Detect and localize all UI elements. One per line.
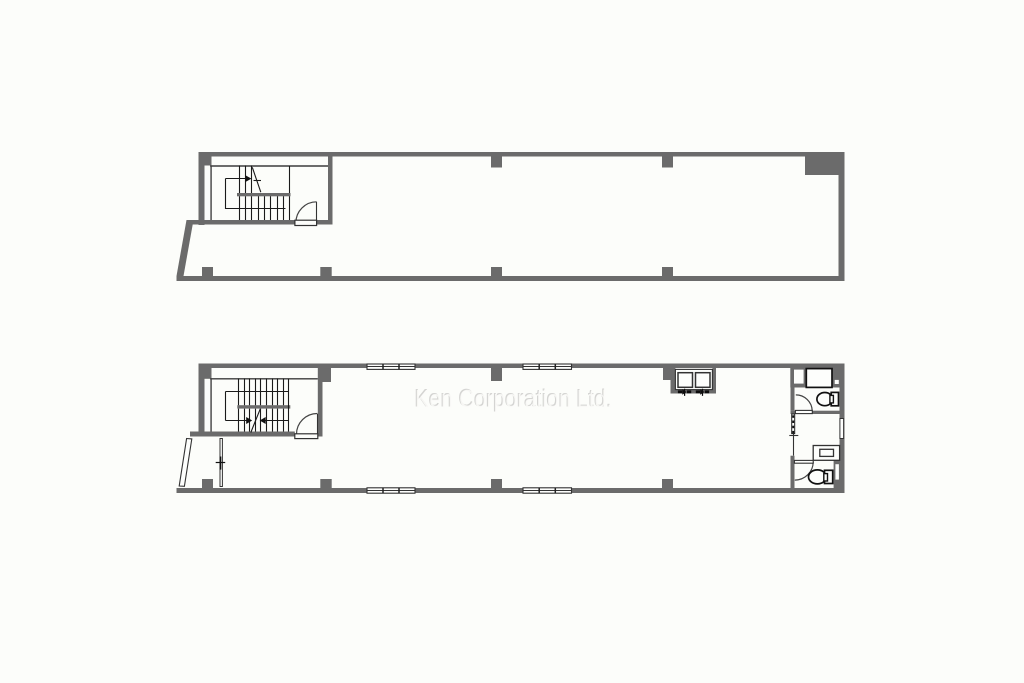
svg-text:Ken Corporation Ltd.: Ken Corporation Ltd.: [415, 386, 612, 414]
